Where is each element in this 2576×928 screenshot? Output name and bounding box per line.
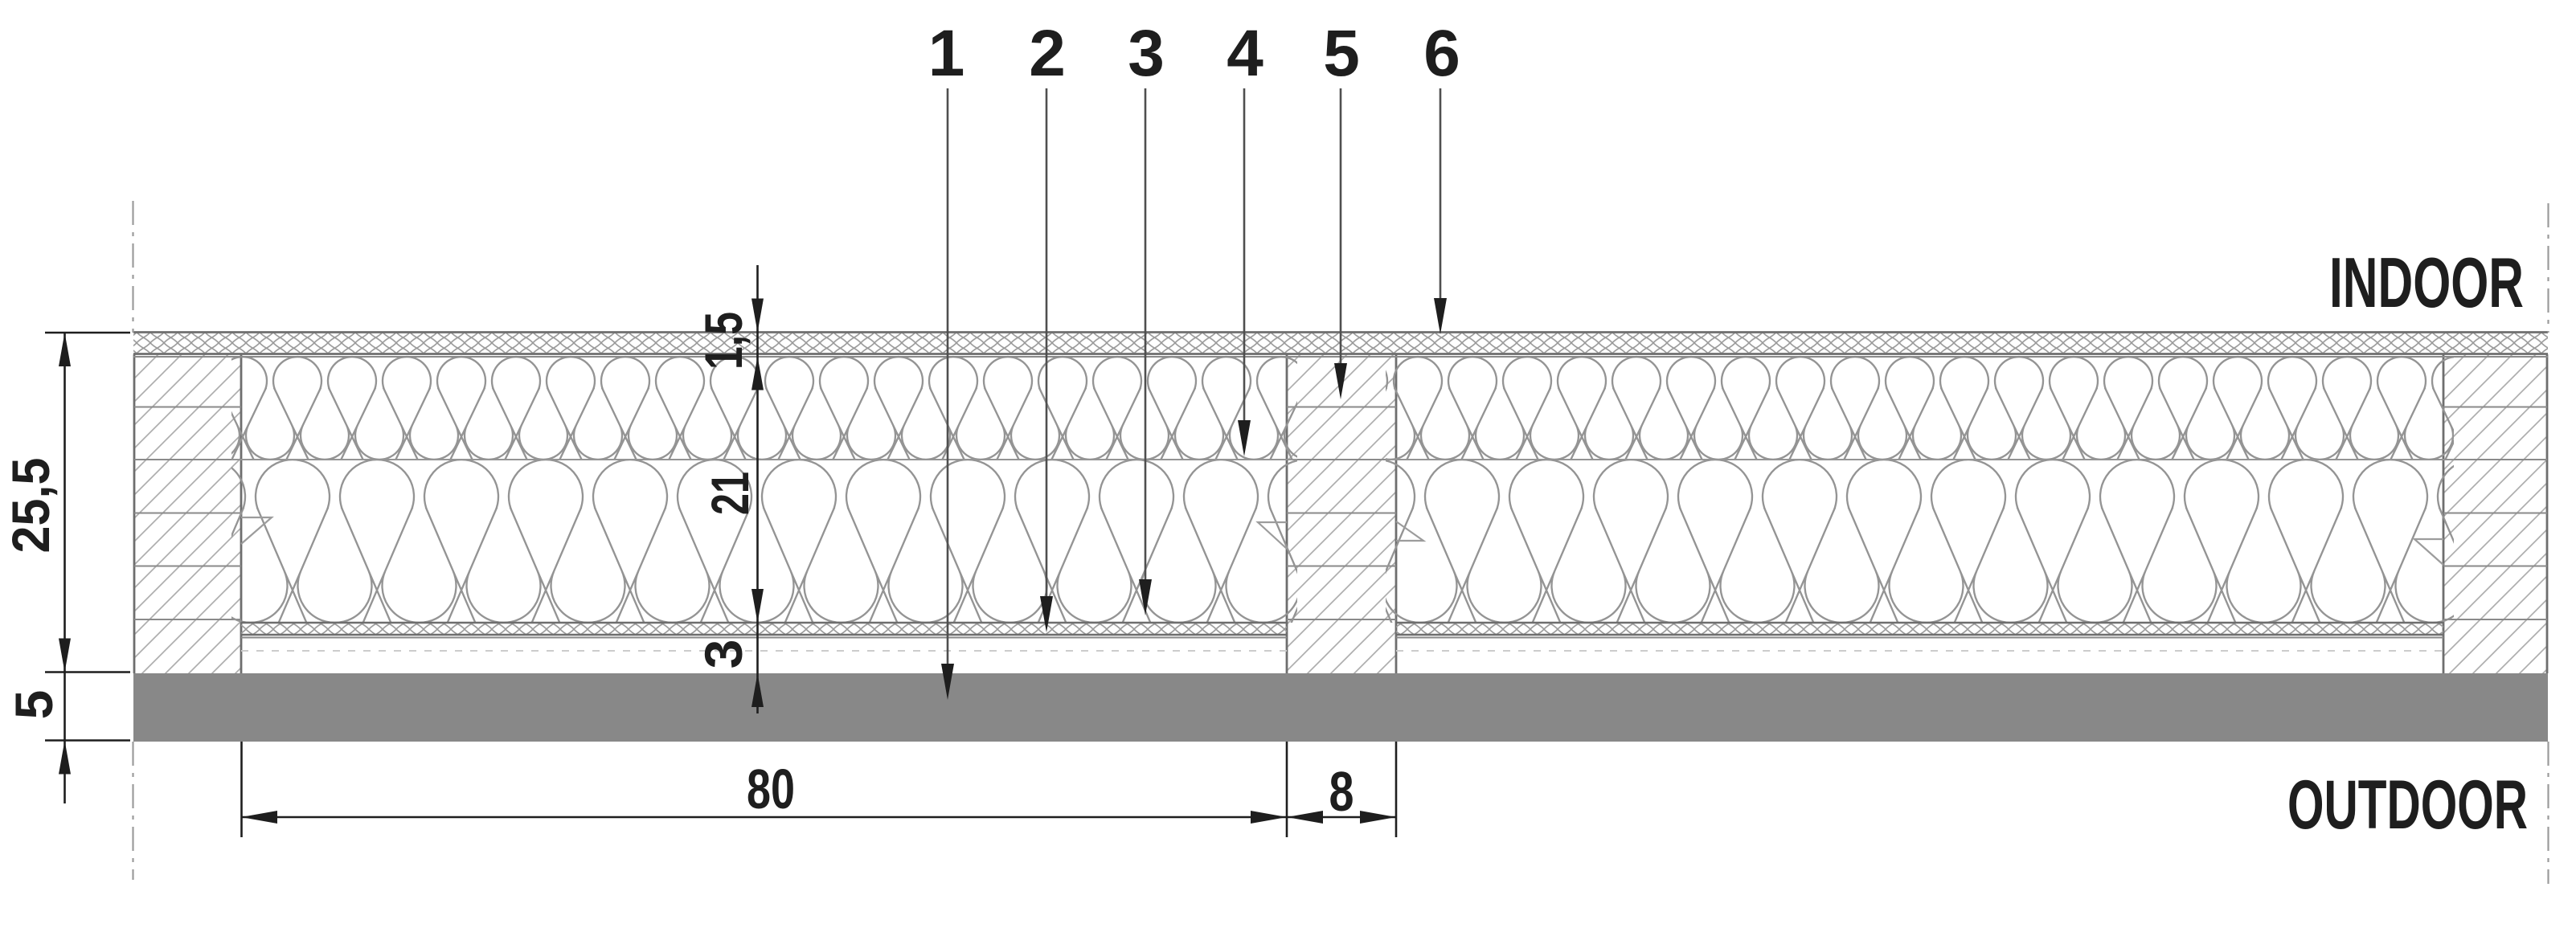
svg-text:3: 3 <box>1128 17 1165 90</box>
svg-text:5: 5 <box>1323 17 1360 90</box>
svg-text:3: 3 <box>694 640 753 669</box>
svg-text:4: 4 <box>1227 17 1263 90</box>
svg-text:1,5: 1,5 <box>694 312 753 370</box>
svg-text:25,5: 25,5 <box>1 458 60 554</box>
svg-text:6: 6 <box>1423 17 1460 90</box>
svg-text:OUTDOOR: OUTDOOR <box>2287 767 2528 844</box>
svg-text:21: 21 <box>700 472 760 515</box>
svg-text:80: 80 <box>747 758 795 820</box>
svg-text:2: 2 <box>1029 17 1066 90</box>
svg-text:1: 1 <box>928 17 965 90</box>
svg-text:5: 5 <box>4 690 63 720</box>
svg-text:INDOOR: INDOOR <box>2329 243 2524 322</box>
svg-text:8: 8 <box>1329 760 1354 823</box>
